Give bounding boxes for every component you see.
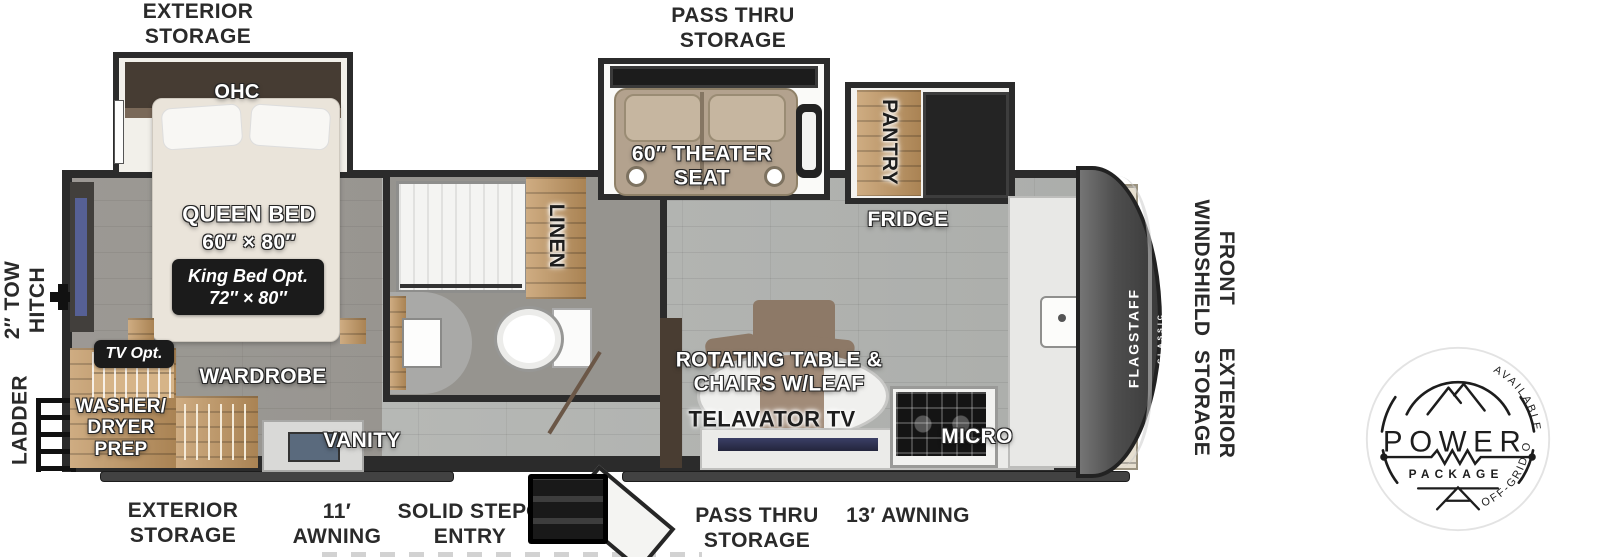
- label-vanity: VANITY: [323, 429, 400, 453]
- tv-option-box: TV Opt.: [94, 340, 174, 368]
- label-13ft-awning: 13′ AWNING: [846, 504, 970, 529]
- power-package-badge: AVAILABLE WITH POWER PACKAGE OFF-GRID OP…: [1363, 344, 1553, 534]
- entry-steps: [528, 474, 608, 544]
- label-pantry: PANTRY: [877, 99, 901, 185]
- wardrobe-hangers: [184, 404, 250, 460]
- toilet: [494, 306, 564, 372]
- label-washer-dryer-prep: WASHER/ DRYER PREP: [76, 396, 167, 460]
- label-ladder: LADDER: [9, 345, 34, 495]
- label-wardrobe: WARDROBE: [199, 365, 326, 389]
- label-solid-step-entry: SOLID STEP® ENTRY: [398, 500, 543, 550]
- label-exterior-storage-bottom: EXTERIOR STORAGE: [128, 499, 239, 549]
- badge-package-text: PACKAGE: [1409, 467, 1504, 481]
- label-queen-bed-size: 60″ × 80″: [202, 231, 295, 255]
- label-pass-thru-storage-top: PASS THRU STORAGE: [671, 4, 794, 54]
- tv-option-label: TV Opt.: [106, 344, 163, 364]
- shower-door: [400, 284, 522, 288]
- label-exterior-storage-top: EXTERIOR STORAGE: [143, 0, 254, 50]
- awning-rail-11ft: [100, 471, 454, 482]
- theater-seat-back-left: [624, 94, 702, 142]
- nightstand-right: [340, 318, 366, 344]
- bedroom-slide-window: [114, 100, 124, 164]
- brand-name: FLAGSTAFF: [1126, 258, 1142, 418]
- fridge: [923, 92, 1009, 198]
- bath-sink: [402, 318, 442, 368]
- bedroom-tv: [75, 198, 87, 316]
- label-11ft-awning: 11′ AWNING: [293, 500, 382, 550]
- pillow-left: [161, 103, 244, 150]
- king-bed-option-label: King Bed Opt.: [188, 265, 308, 288]
- brand-flagstaff: FLAGSTAFF CLASSIC: [1111, 258, 1182, 418]
- label-pass-thru-storage-bottom: PASS THRU STORAGE: [695, 504, 818, 554]
- floorplan-canvas: EXTERIOR STORAGE PASS THRU STORAGE EXTER…: [0, 0, 1600, 557]
- theater-side-window: [802, 112, 816, 170]
- label-telavator-tv: TELAVATOR TV: [689, 408, 856, 433]
- label-exterior-storage-front: EXTERIOR STORAGE: [1188, 323, 1238, 483]
- label-ohc-bedroom: OHC: [214, 81, 259, 103]
- label-linen: LINEN: [544, 204, 568, 269]
- label-fridge: FRIDGE: [867, 208, 948, 232]
- faucet: [1058, 314, 1066, 322]
- king-bed-option-box: King Bed Opt. 72″ × 80″: [172, 259, 324, 315]
- label-theater-seat: 60″ THEATER SEAT: [632, 142, 772, 189]
- theater-seat-back-right: [708, 94, 786, 142]
- pillow-right: [249, 103, 332, 150]
- telavator-tv-unit: [718, 438, 878, 451]
- label-micro: MICRO: [941, 425, 1013, 449]
- label-rotating-table: ROTATING TABLE & CHAIRS W/LEAF: [676, 348, 883, 395]
- theater-window-band: [610, 66, 818, 88]
- shower: [396, 181, 528, 293]
- tow-hitch-icon-post: [58, 284, 68, 310]
- awning-rail-13ft: [622, 471, 1130, 482]
- label-queen-bed: QUEEN BED: [182, 203, 316, 228]
- king-bed-option-size: 72″ × 80″: [209, 287, 287, 310]
- brand-sub: CLASSIC: [1158, 258, 1166, 418]
